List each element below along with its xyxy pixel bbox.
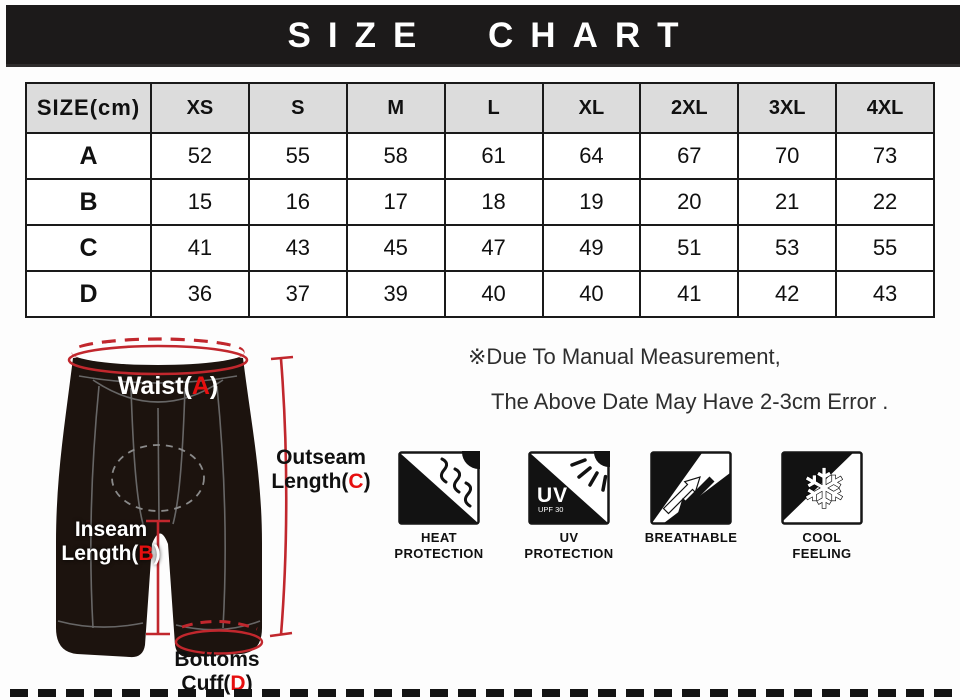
column-header-3xl: 3XL (738, 83, 836, 133)
feature-label: HEAT PROTECTION (394, 530, 483, 563)
feature-cool-feeling: ❄ COOL FEELING (766, 451, 878, 563)
size-value: 17 (347, 179, 445, 225)
row-label: B (26, 179, 151, 225)
waist-opening (72, 341, 244, 365)
column-header-l: L (445, 83, 543, 133)
size-value: 49 (543, 225, 641, 271)
size-value: 64 (543, 133, 641, 179)
size-value: 45 (347, 225, 445, 271)
size-value: 18 (445, 179, 543, 225)
column-header-2xl: 2XL (640, 83, 738, 133)
table-header-row: SIZE(cm) XS S M L XL 2XL 3XL 4XL (26, 83, 934, 133)
table-row-d: D 36 37 39 40 40 41 42 43 (26, 271, 934, 317)
outseam-label: Outseam Length(C) (260, 446, 382, 494)
size-value: 39 (347, 271, 445, 317)
size-value: 40 (445, 271, 543, 317)
size-value: 36 (151, 271, 249, 317)
size-value: 70 (738, 133, 836, 179)
feature-label: UV PROTECTION (524, 530, 613, 563)
table-row-a: A 52 55 58 61 64 67 70 73 (26, 133, 934, 179)
size-table: SIZE(cm) XS S M L XL 2XL 3XL 4XL A 52 55… (25, 82, 935, 318)
size-value: 20 (640, 179, 738, 225)
measurement-note-line1: ※Due To Manual Measurement, (468, 344, 781, 370)
column-header-s: S (249, 83, 347, 133)
size-value: 55 (249, 133, 347, 179)
size-value: 47 (445, 225, 543, 271)
size-value: 42 (738, 271, 836, 317)
size-value: 41 (151, 225, 249, 271)
size-value: 37 (249, 271, 347, 317)
outseam-measure-line (270, 357, 293, 636)
column-header-4xl: 4XL (836, 83, 934, 133)
cool-feeling-icon: ❄ (781, 451, 863, 525)
feature-label: BREATHABLE (645, 530, 738, 546)
heat-protection-icon (398, 451, 480, 525)
size-value: 40 (543, 271, 641, 317)
waist-label: Waist(A) (98, 372, 238, 401)
size-value: 61 (445, 133, 543, 179)
size-value: 43 (249, 225, 347, 271)
size-value: 21 (738, 179, 836, 225)
feature-heat-protection: HEAT PROTECTION (383, 451, 495, 563)
size-value: 51 (640, 225, 738, 271)
size-value: 43 (836, 271, 934, 317)
snowflake-icon: ❄ (801, 457, 847, 521)
size-chart-page: SIZE CHART SIZE(cm) XS S M L XL 2XL 3XL … (0, 0, 960, 700)
column-header-xl: XL (543, 83, 641, 133)
size-value: 73 (836, 133, 934, 179)
feature-label: COOL FEELING (792, 530, 851, 563)
size-value: 15 (151, 179, 249, 225)
size-value: 67 (640, 133, 738, 179)
page-title: SIZE CHART (271, 16, 696, 56)
size-value: 53 (738, 225, 836, 271)
feature-breathable: BREATHABLE (635, 451, 747, 546)
column-header-xs: XS (151, 83, 249, 133)
title-bar: SIZE CHART (6, 5, 960, 67)
size-value: 16 (249, 179, 347, 225)
size-value: 52 (151, 133, 249, 179)
table-row-c: C 41 43 45 47 49 51 53 55 (26, 225, 934, 271)
breathable-icon (650, 451, 732, 525)
feature-uv-protection: UV UPF 30 UV PROTECTION (513, 451, 625, 563)
size-value: 55 (836, 225, 934, 271)
column-header-m: M (347, 83, 445, 133)
row-label: D (26, 271, 151, 317)
table-row-b: B 15 16 17 18 19 20 21 22 (26, 179, 934, 225)
measurement-note-line2: The Above Date May Have 2-3cm Error . (491, 389, 888, 415)
size-unit-header: SIZE(cm) (26, 83, 151, 133)
inseam-label: Inseam Length(B) (46, 518, 176, 566)
size-value: 19 (543, 179, 641, 225)
row-label: C (26, 225, 151, 271)
size-value: 58 (347, 133, 445, 179)
upf-badge-text: UPF 30 (538, 505, 563, 514)
uv-badge-text: UV (537, 484, 568, 507)
size-value: 41 (640, 271, 738, 317)
uv-protection-icon: UV UPF 30 (528, 451, 610, 525)
row-label: A (26, 133, 151, 179)
dashed-divider (10, 689, 955, 697)
size-value: 22 (836, 179, 934, 225)
